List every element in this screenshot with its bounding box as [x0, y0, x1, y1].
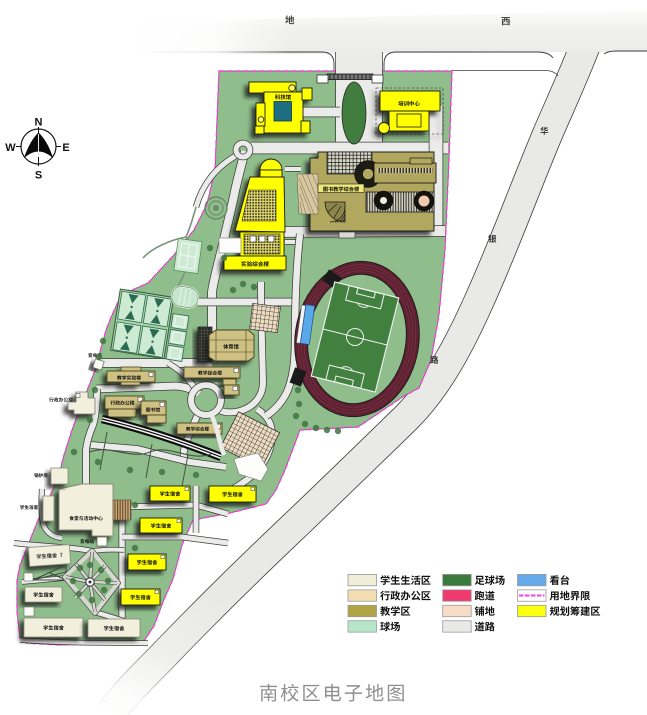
svg-text:E: E: [62, 142, 69, 154]
svg-text:N: N: [35, 117, 43, 129]
svg-text:W: W: [5, 142, 16, 154]
svg-text:S: S: [35, 170, 42, 182]
